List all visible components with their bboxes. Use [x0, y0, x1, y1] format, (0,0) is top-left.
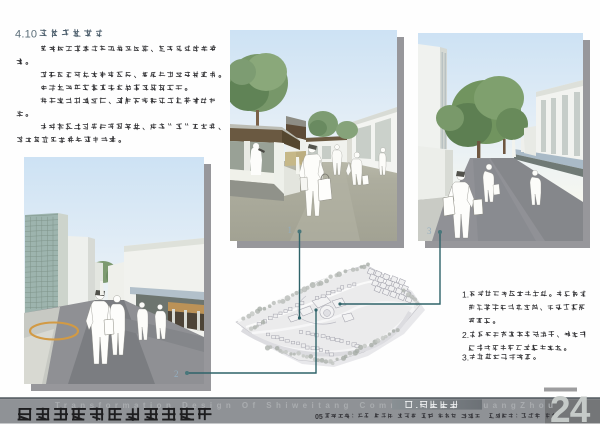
svg-text:2.: 2.	[462, 330, 469, 340]
svg-text:24: 24	[550, 389, 591, 425]
svg-text:1.: 1.	[462, 289, 469, 299]
svg-text:05: 05	[315, 414, 323, 421]
svg-text:4.10: 4.10	[15, 29, 37, 41]
svg-text:1: 1	[288, 225, 293, 235]
svg-text:3.: 3.	[462, 352, 469, 362]
svg-text:3: 3	[427, 226, 432, 236]
svg-text:2: 2	[174, 369, 179, 379]
